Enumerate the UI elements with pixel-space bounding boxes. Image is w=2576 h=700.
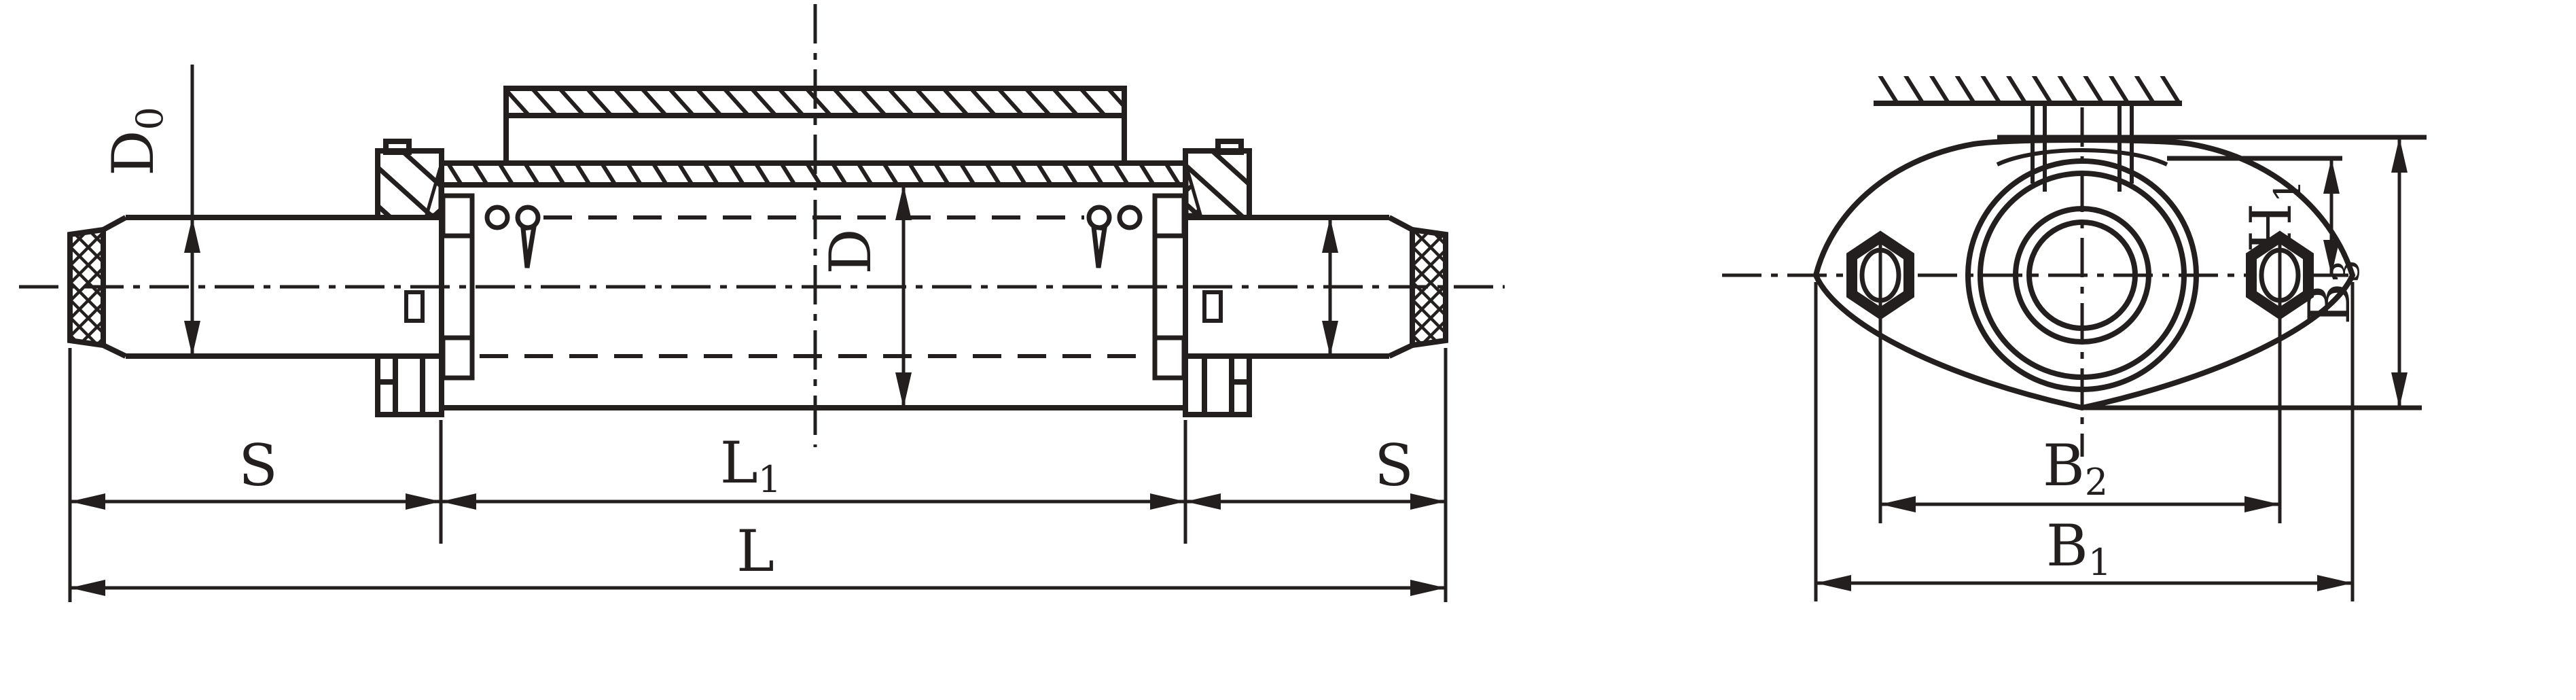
side-section-view — [19, 4, 1505, 602]
label-s-left: S — [238, 432, 278, 499]
label-h1: H1 — [2238, 179, 2309, 253]
left-end-cap — [378, 141, 442, 415]
centerlines — [19, 4, 1505, 447]
dim-d0 — [184, 65, 200, 356]
dim-d — [895, 185, 912, 408]
mounting-wall — [1874, 76, 2182, 103]
label-l: L — [736, 518, 774, 584]
label-b1: B1 — [2046, 512, 2111, 584]
right-end-cap — [1185, 141, 1249, 415]
label-b2: B2 — [2043, 432, 2108, 504]
technical-drawing: D0 D S L1 S L H1 B3 B2 B1 — [0, 0, 2576, 700]
left-shaft — [70, 217, 442, 356]
label-l1: L1 — [720, 430, 781, 501]
label-d: D — [817, 228, 884, 274]
dim-b3 — [2391, 137, 2408, 408]
label-d0: D0 — [100, 107, 171, 176]
label-s-right: S — [1374, 432, 1414, 499]
dim-h1 — [2323, 158, 2340, 275]
drawing-canvas: D0 D S L1 S L H1 B3 B2 B1 — [0, 0, 2576, 700]
